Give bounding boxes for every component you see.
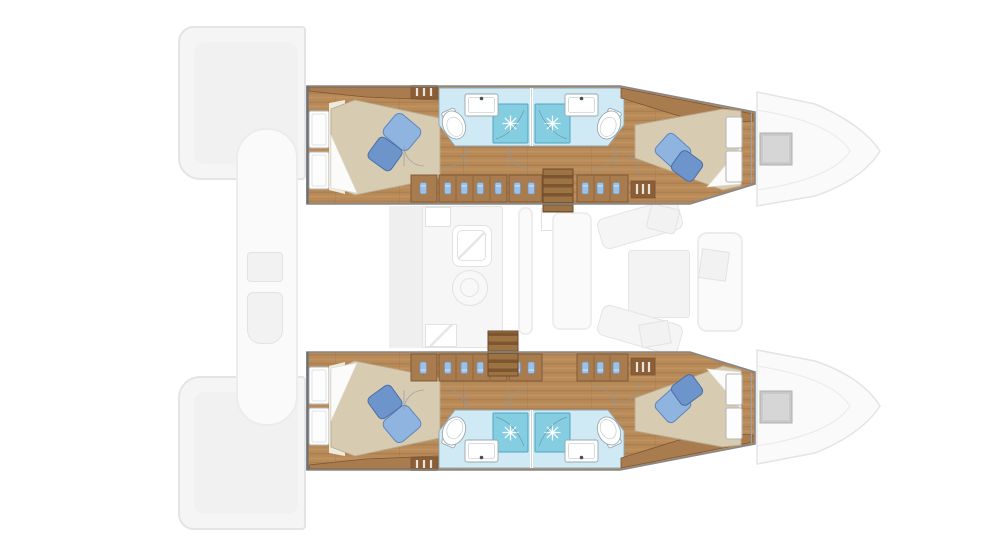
- companionway-steps: [543, 169, 573, 212]
- louvre-vent-fwd: [631, 358, 655, 375]
- washbasin-aft: [465, 440, 498, 462]
- hanging-clothes-icon: [477, 362, 484, 376]
- washbasin-aft: [465, 94, 498, 116]
- hanging-clothes-icon: [477, 181, 484, 195]
- hanging-clothes-icon: [613, 181, 620, 195]
- companionway-steps: [488, 331, 518, 376]
- hanging-clothes-icon: [420, 362, 427, 376]
- washbasin-fwd: [565, 94, 598, 116]
- hanging-clothes-icon: [420, 181, 427, 195]
- boat-plan-canvas: Top-down floor plan of a four-cabin sail…: [0, 0, 1007, 556]
- hanging-clothes-icon: [495, 181, 502, 195]
- hull-window: [726, 408, 742, 439]
- wardrobes: [411, 354, 655, 381]
- upper-hull-svg: [305, 85, 757, 213]
- louvre-vent-aft: [411, 86, 437, 99]
- hanging-clothes-icon: [461, 362, 468, 376]
- hull-window: [726, 374, 742, 405]
- bathrooms: [437, 88, 625, 146]
- hanging-clothes-icon: [528, 362, 535, 376]
- hull-window: [726, 151, 742, 182]
- wardrobes: [411, 175, 655, 202]
- hanging-clothes-icon: [597, 362, 604, 376]
- bathrooms: [437, 410, 625, 468]
- washbasin-fwd: [565, 440, 598, 462]
- hanging-clothes-icon: [461, 181, 468, 195]
- louvre-vent-fwd: [631, 181, 655, 198]
- lower-hull-svg: [305, 343, 757, 471]
- shower-spray-icon: [545, 116, 561, 132]
- hanging-clothes-icon: [528, 181, 535, 195]
- bow-hatch-bottom-glass: [763, 394, 789, 420]
- hull-window: [726, 117, 742, 148]
- bow-hatch-top-glass: [763, 136, 789, 162]
- hanging-clothes-icon: [582, 181, 589, 195]
- hanging-clothes-icon: [582, 362, 589, 376]
- hanging-clothes-icon: [445, 362, 452, 376]
- hanging-clothes-icon: [597, 181, 604, 195]
- hanging-clothes-icon: [514, 181, 521, 195]
- louvre-vent-aft: [411, 458, 437, 471]
- shower-spray-icon: [545, 425, 561, 441]
- hanging-clothes-icon: [613, 362, 620, 376]
- bow-sections-svg: [0, 0, 1007, 556]
- hanging-clothes-icon: [445, 181, 452, 195]
